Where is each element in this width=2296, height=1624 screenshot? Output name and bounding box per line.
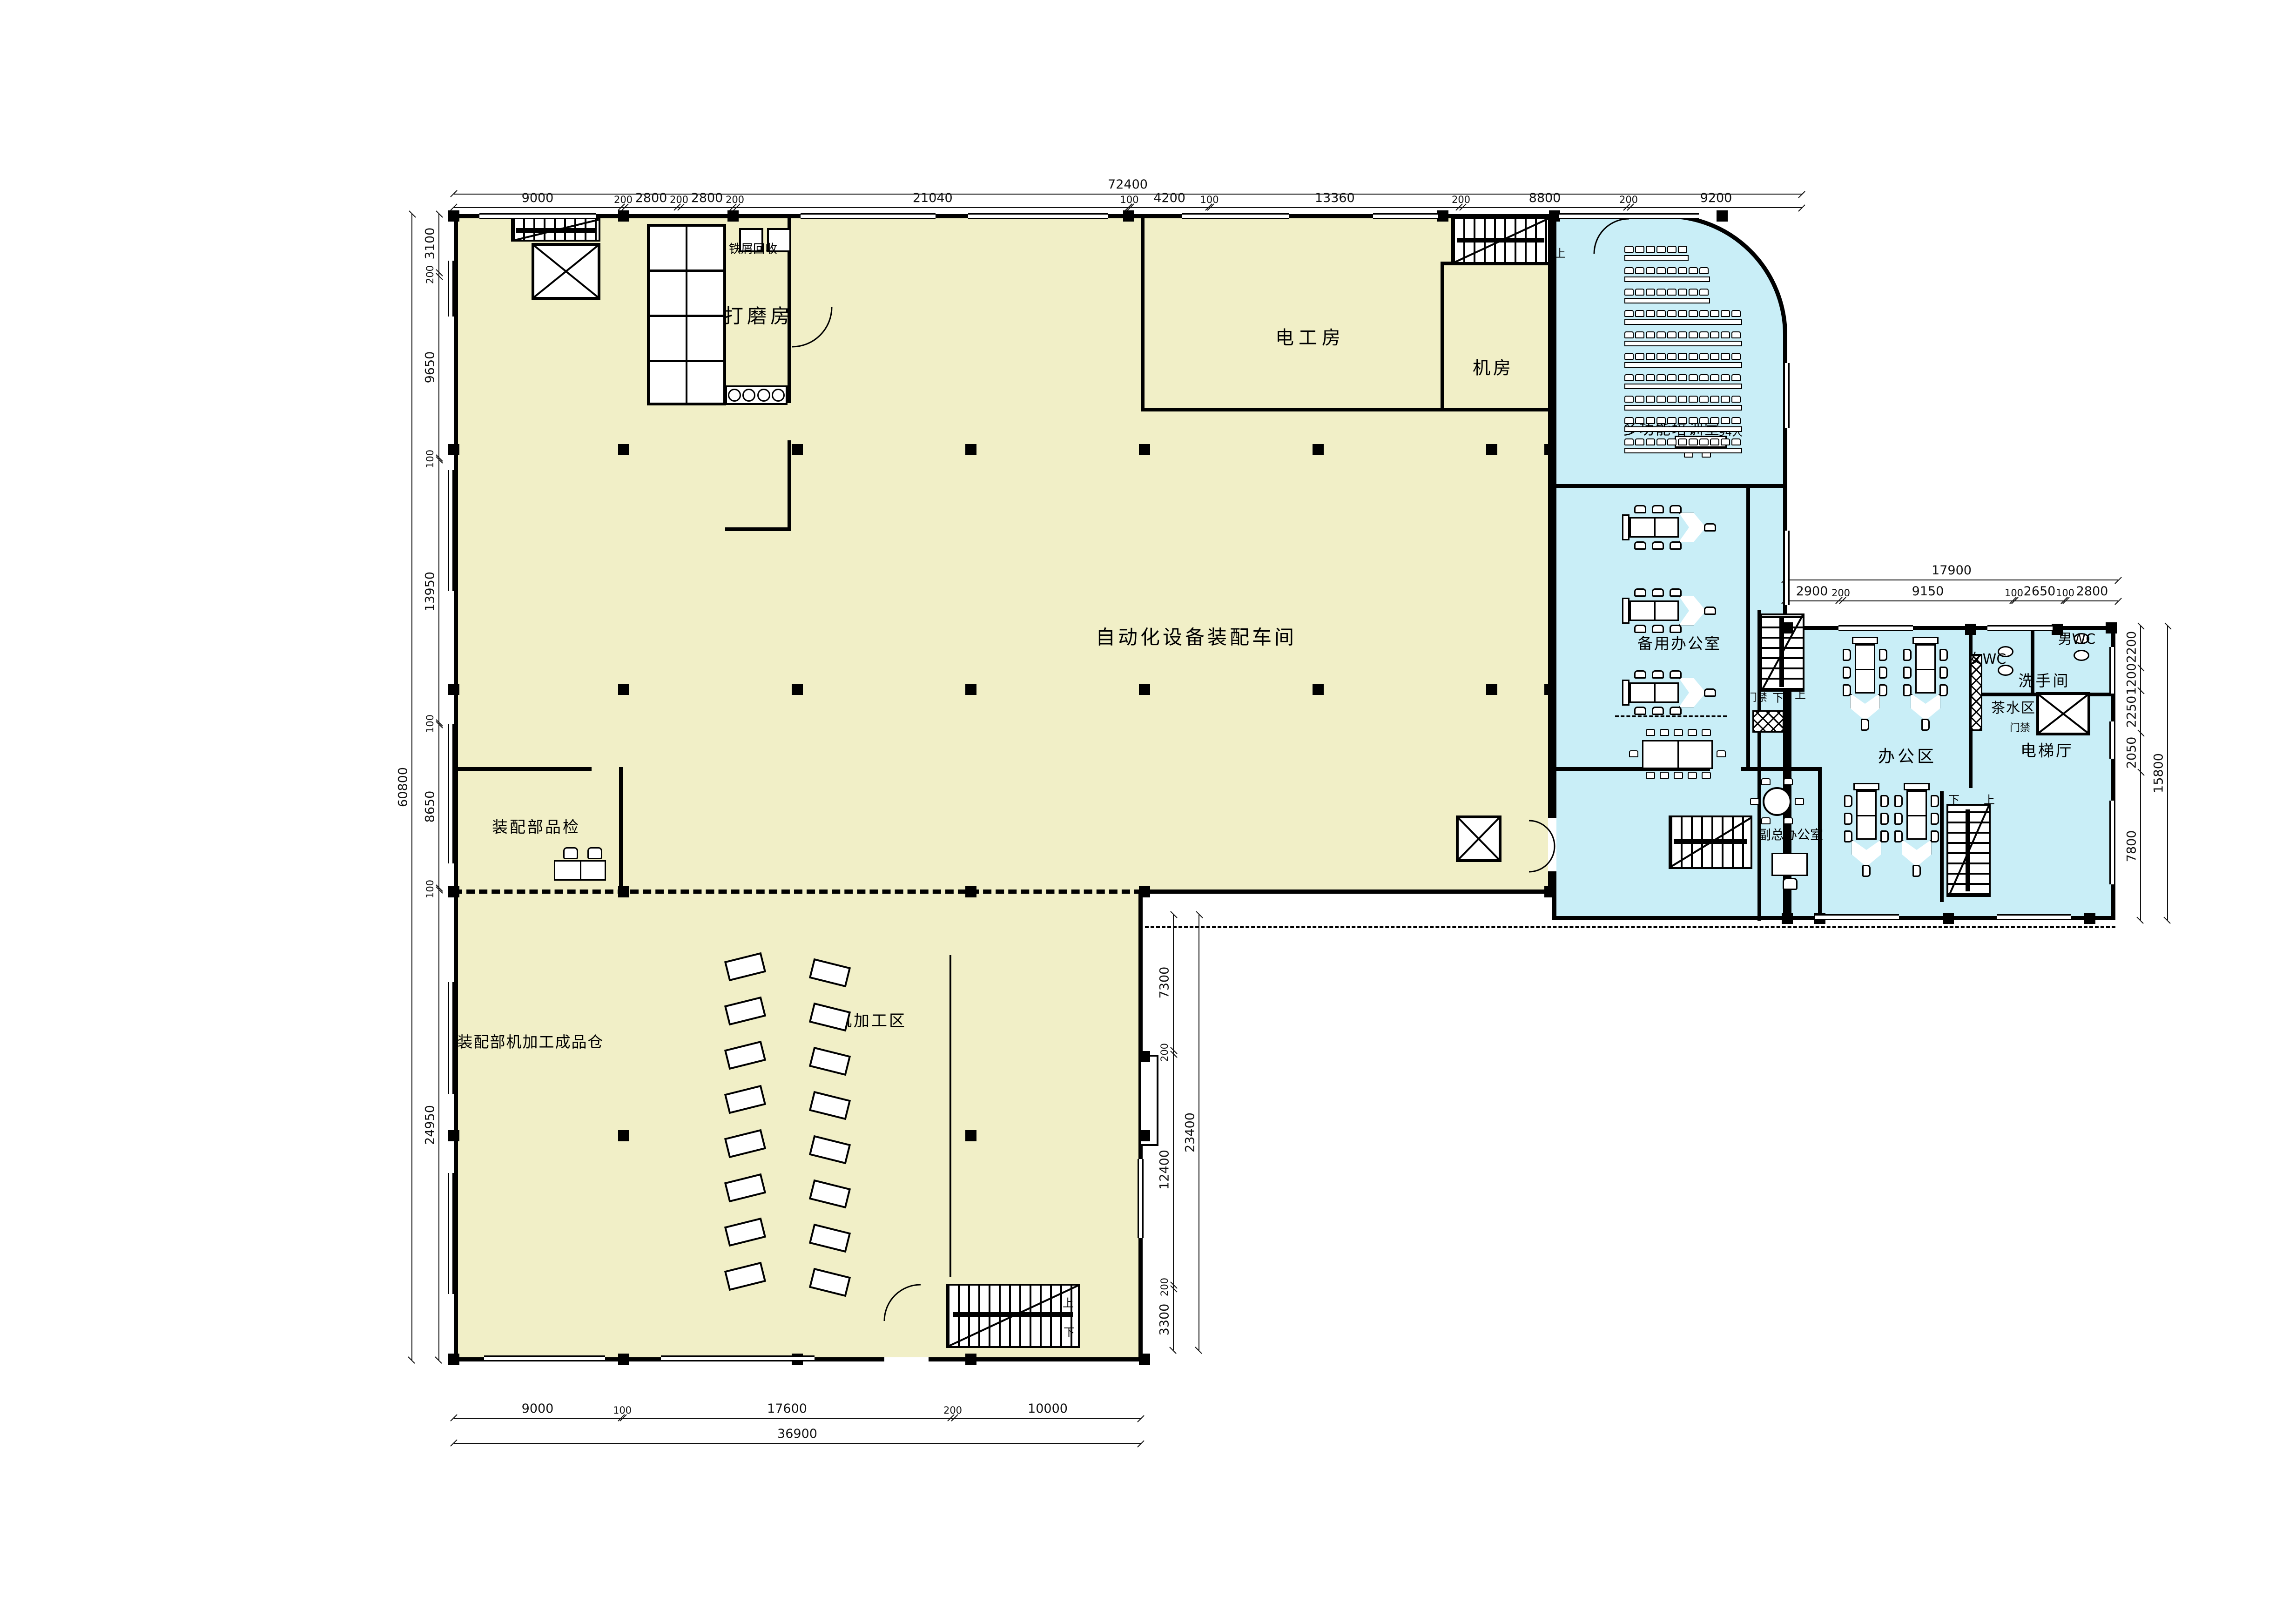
conveyor-line — [949, 955, 951, 1277]
room-label-electrician: 电工房 — [1275, 323, 1345, 350]
office-chair — [1670, 625, 1682, 633]
column — [727, 210, 739, 222]
stair-east-wing — [1946, 804, 1991, 897]
training-seat — [1624, 289, 1634, 296]
meeting-chair — [1761, 778, 1771, 785]
office-chair — [1912, 865, 1921, 877]
training-seat — [1699, 438, 1709, 445]
column — [618, 886, 629, 897]
desk — [1629, 600, 1679, 621]
training-seat — [1656, 374, 1666, 381]
training-seat — [1635, 267, 1644, 274]
window — [1559, 213, 1699, 219]
workstation-cluster — [1843, 637, 1887, 730]
dim-segment: 4200 — [1131, 191, 1209, 208]
office-chair — [1670, 707, 1682, 715]
training-desk — [1624, 319, 1742, 325]
training-seat — [1646, 331, 1655, 338]
cabinet — [1622, 598, 1629, 624]
sink-counter — [725, 385, 788, 405]
office-chair — [1931, 795, 1939, 807]
training-seat — [1710, 331, 1719, 338]
office-chair — [1843, 684, 1851, 696]
training-seat — [1656, 417, 1666, 424]
column — [1486, 684, 1497, 695]
dim-segment: 200 — [733, 191, 737, 208]
dim-segment: 17600 — [623, 1402, 951, 1419]
workstation-cluster — [1894, 783, 1939, 876]
office-chair — [1879, 649, 1887, 661]
column — [448, 684, 459, 695]
cabinet — [1852, 637, 1878, 644]
door-gap-south-entry — [884, 1357, 929, 1363]
column — [448, 210, 459, 222]
dim-segment: 9200 — [1630, 191, 1802, 208]
training-seat — [1624, 396, 1634, 403]
stair-north-machineroom — [1451, 217, 1550, 264]
training-seat — [1710, 438, 1719, 445]
inspection-chair — [587, 847, 602, 859]
desk — [1629, 682, 1679, 703]
spare-office-divider — [1615, 715, 1727, 717]
desk-wing — [1679, 595, 1706, 627]
training-seat — [1721, 374, 1730, 381]
wall-electrician-bottom — [1141, 408, 1555, 411]
column — [618, 210, 629, 222]
office-chair — [1879, 667, 1887, 679]
workstation-cluster — [1622, 505, 1715, 550]
training-seat — [1656, 246, 1666, 253]
wall-east-stair-left — [1940, 791, 1944, 902]
wall-spare-right — [1746, 484, 1750, 770]
toilet-stall-block — [647, 224, 726, 405]
training-seat — [1667, 374, 1677, 381]
window — [2109, 647, 2115, 694]
dim-segment: 200 — [1173, 1285, 1190, 1289]
office-chair — [1704, 523, 1716, 532]
column — [965, 684, 976, 695]
dim-bottom-segments: 90001001760020010000 — [454, 1403, 1141, 1419]
training-seat — [1635, 331, 1644, 338]
dim-top-segments: 9000200280020028002002104010042001001336… — [454, 192, 1802, 208]
wall-machineroom-left — [1441, 264, 1444, 411]
office-chair — [1862, 865, 1871, 877]
training-seat — [1699, 289, 1709, 296]
training-seat — [1699, 310, 1709, 317]
elevator-lobby — [1456, 815, 1501, 862]
training-seat — [1635, 246, 1644, 253]
meeting-chair — [1761, 817, 1771, 824]
label-access-control: 门禁 — [1747, 689, 1767, 704]
office-chair — [1634, 505, 1646, 513]
column — [448, 1130, 459, 1141]
dim-segment: 200 — [1839, 585, 1843, 601]
training-seat — [1635, 374, 1644, 381]
training-seat — [1656, 310, 1666, 317]
window — [448, 261, 454, 317]
dim-segment: 2900 — [1785, 585, 1839, 601]
training-seat — [1699, 374, 1709, 381]
column — [618, 1354, 629, 1365]
training-seat — [1667, 289, 1677, 296]
room-label-machine-room: 机房 — [1473, 354, 1514, 379]
dim-segment: 3300 — [1173, 1289, 1190, 1350]
training-desk — [1624, 298, 1710, 303]
window — [1784, 531, 1790, 605]
column — [618, 444, 629, 455]
room-label-men-wc: 男WC — [2058, 627, 2096, 648]
window — [661, 1355, 815, 1361]
office-chair — [1903, 667, 1912, 679]
room-label-washroom: 洗手间 — [2019, 668, 2070, 691]
office-chair — [1894, 813, 1903, 825]
training-seat — [1646, 396, 1655, 403]
room-label-inspection: 装配部品检 — [492, 815, 580, 837]
training-seat — [1689, 438, 1698, 445]
desk-wing — [1910, 694, 1941, 721]
column — [1943, 913, 1954, 924]
stair-lobby — [1669, 815, 1752, 869]
window — [484, 1355, 605, 1361]
training-seat — [1699, 267, 1709, 274]
dim-segment: 23400 — [1198, 915, 1215, 1350]
training-seat — [1678, 374, 1687, 381]
dim-segment: 2250 — [2140, 691, 2157, 734]
training-seat — [1678, 267, 1687, 274]
desk-wing — [1679, 677, 1706, 708]
training-seat — [1731, 438, 1741, 445]
office-chair — [1652, 505, 1664, 513]
training-seat — [1646, 267, 1655, 274]
window — [801, 213, 936, 219]
room-label-tea-area: 茶水区 — [1991, 696, 2036, 717]
dim-segment: 7800 — [2140, 772, 2157, 920]
office-chair — [1652, 670, 1664, 679]
conference-table — [1642, 740, 1713, 769]
office-chair — [1634, 707, 1646, 715]
workstation-cluster — [1903, 637, 1948, 730]
office-chair — [1939, 667, 1948, 679]
training-desk — [1624, 362, 1742, 368]
room-label-grinding: 打磨房 — [724, 301, 794, 329]
elevator-northwest — [532, 243, 600, 300]
office-chair — [1844, 830, 1852, 842]
column — [618, 1130, 629, 1141]
label-stair-up: 上 — [1063, 1294, 1074, 1310]
training-seat — [1646, 438, 1655, 445]
column — [2084, 913, 2095, 924]
training-seat — [1689, 417, 1698, 424]
training-seat — [1678, 353, 1687, 360]
window — [968, 213, 1108, 219]
dim-segment: 12400 — [1173, 1054, 1190, 1285]
dim-segment: 9000 — [454, 1402, 621, 1419]
room-label-elevator-hall: 电梯厅 — [2020, 738, 2074, 761]
training-seat — [1689, 331, 1698, 338]
window — [1838, 625, 1913, 631]
label-stair-up: 上 — [1795, 686, 1806, 702]
dim-segment: 200 — [1627, 191, 1630, 208]
dim-segment: 9000 — [454, 191, 621, 208]
label-stair-up: 上 — [1984, 791, 1995, 807]
room-label-warehouse: 装配部机加工成品仓 — [458, 1030, 604, 1052]
training-seat — [1667, 417, 1677, 424]
column — [1782, 622, 1793, 633]
window — [1138, 1159, 1144, 1238]
office-chair — [1704, 606, 1716, 615]
office-chair — [1634, 541, 1646, 550]
stair-south — [946, 1284, 1080, 1348]
column — [965, 444, 976, 455]
training-seat — [1624, 417, 1634, 424]
office-chair — [1634, 625, 1646, 633]
office-chair — [1939, 649, 1948, 661]
training-seat — [1678, 310, 1687, 317]
office-chair — [1931, 830, 1939, 842]
wall-grinding-right-lower — [788, 440, 791, 531]
column — [1139, 444, 1150, 455]
column — [1313, 684, 1324, 695]
training-seat — [1699, 417, 1709, 424]
training-desk — [1624, 384, 1742, 389]
training-seat — [1721, 310, 1730, 317]
training-seat — [1699, 331, 1709, 338]
office-chair — [1652, 541, 1664, 550]
training-seat — [1710, 310, 1719, 317]
column — [965, 1354, 976, 1365]
dim-mid-total: 23400 — [1198, 915, 1214, 1350]
office-chair — [1670, 588, 1682, 597]
column — [1486, 444, 1497, 455]
desk — [1629, 517, 1679, 538]
column — [1965, 624, 1976, 635]
desk-wing — [1851, 840, 1882, 867]
training-seat — [1721, 331, 1730, 338]
office-chair — [1652, 625, 1664, 633]
column — [792, 444, 803, 455]
desk-wing — [1901, 840, 1932, 867]
training-desk — [1624, 448, 1742, 453]
training-seat — [1731, 374, 1741, 381]
training-seat — [1624, 331, 1634, 338]
training-seat — [1624, 374, 1634, 381]
training-seat — [1678, 331, 1687, 338]
dim-segment: 15800 — [2167, 626, 2184, 920]
window — [2109, 801, 2115, 884]
conference-chair — [1674, 772, 1683, 779]
wall-electrician-left — [1141, 217, 1145, 411]
training-seat — [1624, 438, 1634, 445]
cabinet — [1912, 637, 1939, 644]
wall-deputy-top-b — [1741, 767, 1822, 771]
column — [1139, 886, 1150, 897]
label-stair-down: 下 — [1064, 1323, 1075, 1340]
room-label-deputy-office: 副总办公室 — [1758, 825, 1823, 843]
room-label-women-wc: 女WC — [1969, 647, 2006, 668]
dim-segment: 200 — [621, 191, 625, 208]
dim-segment: 1200 — [2140, 668, 2157, 691]
window — [448, 1173, 454, 1294]
cabinet — [1904, 783, 1930, 790]
training-seat — [1667, 353, 1677, 360]
office-chair — [1880, 830, 1889, 842]
training-seat — [1667, 396, 1677, 403]
training-seat — [1678, 417, 1687, 424]
office-chair — [1670, 505, 1682, 513]
workstation-cluster — [1622, 670, 1715, 715]
label-stair-down: 下 — [1948, 791, 1959, 807]
desk — [1855, 644, 1875, 694]
office-chair — [1939, 684, 1948, 696]
training-seat — [1678, 438, 1687, 445]
training-seat — [1635, 353, 1644, 360]
training-seat — [1635, 396, 1644, 403]
window — [1182, 213, 1289, 219]
training-seat — [1646, 417, 1655, 424]
office-chair — [1670, 541, 1682, 550]
meeting-chair — [1784, 817, 1793, 824]
conference-chair — [1629, 750, 1638, 757]
stair-northwest — [511, 217, 600, 242]
training-seat — [1731, 417, 1741, 424]
office-chair — [1894, 795, 1903, 807]
cabinet — [1622, 514, 1629, 540]
column — [965, 886, 976, 897]
dim-segment: 21040 — [737, 191, 1129, 208]
office-chair — [1652, 707, 1664, 715]
training-seat — [1656, 396, 1666, 403]
column — [1313, 444, 1324, 455]
column — [1139, 1051, 1150, 1062]
training-seat — [1646, 353, 1655, 360]
conference-chair — [1688, 729, 1697, 736]
office-chair — [1880, 813, 1889, 825]
inspection-desk — [554, 860, 606, 881]
meeting-chair — [1784, 778, 1793, 785]
office-chair — [1931, 813, 1939, 825]
elevator-east — [2036, 692, 2090, 735]
training-seat — [1721, 417, 1730, 424]
training-seat — [1710, 353, 1719, 360]
conference-chair — [1702, 772, 1711, 779]
desk — [1906, 790, 1927, 840]
training-seat — [1667, 246, 1677, 253]
dim-left-total: 60800 — [411, 214, 427, 1360]
training-seat — [1635, 417, 1644, 424]
training-seat — [1646, 310, 1655, 317]
desk-wing — [1679, 512, 1706, 543]
dim-east-top-segments: 2900200915010026501002800 — [1785, 586, 2118, 601]
training-seat — [1635, 289, 1644, 296]
office-chair — [1844, 795, 1852, 807]
training-desk — [1624, 276, 1710, 282]
training-seat — [1689, 396, 1698, 403]
training-seat — [1689, 310, 1698, 317]
training-seat — [1689, 267, 1698, 274]
room-label-scrap: 铁屑回收 — [729, 240, 777, 257]
window — [1815, 914, 1899, 920]
sink-icon — [772, 389, 785, 402]
label-access-control: 门禁 — [2010, 720, 2030, 735]
training-seat — [1721, 438, 1730, 445]
desk — [1915, 644, 1936, 694]
office-chair — [1843, 667, 1851, 679]
conference-chair — [1674, 729, 1683, 736]
column — [792, 684, 803, 695]
training-seat — [1635, 310, 1644, 317]
dim-segment: 200 — [1173, 1051, 1190, 1054]
wall-deputy-right — [1818, 767, 1822, 921]
office-chair — [1634, 670, 1646, 679]
dim-segment: 200 — [951, 1402, 955, 1419]
training-seat — [1656, 438, 1666, 445]
training-seat — [1689, 353, 1698, 360]
conference-chair — [1660, 729, 1669, 736]
office-chair — [1844, 813, 1852, 825]
training-seat — [1624, 353, 1634, 360]
training-seat — [1689, 289, 1698, 296]
training-seat — [1656, 289, 1666, 296]
label-stair-down: 下 — [1772, 689, 1784, 705]
training-desk — [1624, 255, 1689, 261]
overhang-dashed-line — [1145, 926, 2115, 928]
training-seat — [1646, 246, 1655, 253]
round-meeting-table — [1763, 787, 1791, 816]
training-seat — [1624, 267, 1634, 274]
training-seat — [1635, 438, 1644, 445]
door-gap-lobby — [1548, 818, 1556, 871]
meeting-chair — [1795, 798, 1804, 805]
office-chair — [1704, 688, 1716, 697]
column — [1123, 210, 1134, 222]
training-seat — [1731, 331, 1741, 338]
window — [448, 470, 454, 591]
sink-icon — [757, 389, 770, 402]
training-seat — [1646, 289, 1655, 296]
training-seat — [1721, 353, 1730, 360]
conference-chair — [1717, 750, 1726, 757]
dim-segment: 9150 — [1843, 585, 2013, 601]
conference-chair — [1646, 772, 1655, 779]
dim-bottom-total: 36900 — [454, 1428, 1141, 1444]
training-seat — [1656, 331, 1666, 338]
office-chair — [1903, 649, 1912, 661]
conference-chair — [1646, 729, 1655, 736]
desk-wing — [1849, 694, 1881, 721]
training-seat — [1710, 374, 1719, 381]
inspection-chair — [563, 847, 578, 859]
dim-segment: 200 — [1459, 191, 1463, 208]
column — [965, 1130, 976, 1141]
column — [448, 444, 459, 455]
column — [1437, 210, 1448, 222]
column — [1544, 444, 1555, 455]
dim-segment: 8800 — [1463, 191, 1627, 208]
dim-segment: 7300 — [1173, 915, 1190, 1051]
training-seat — [1699, 353, 1709, 360]
training-seat — [1667, 267, 1677, 274]
training-seat — [1667, 438, 1677, 445]
dim-east-right-total: 15800 — [2167, 626, 2183, 920]
workstation-cluster — [1844, 783, 1889, 876]
training-seat — [1710, 417, 1719, 424]
column — [1139, 1354, 1150, 1365]
training-seat — [1656, 353, 1666, 360]
dim-segment: 17900 — [1785, 564, 2118, 580]
training-seat — [1646, 374, 1655, 381]
training-seat — [1667, 310, 1677, 317]
training-desk — [1624, 405, 1742, 411]
